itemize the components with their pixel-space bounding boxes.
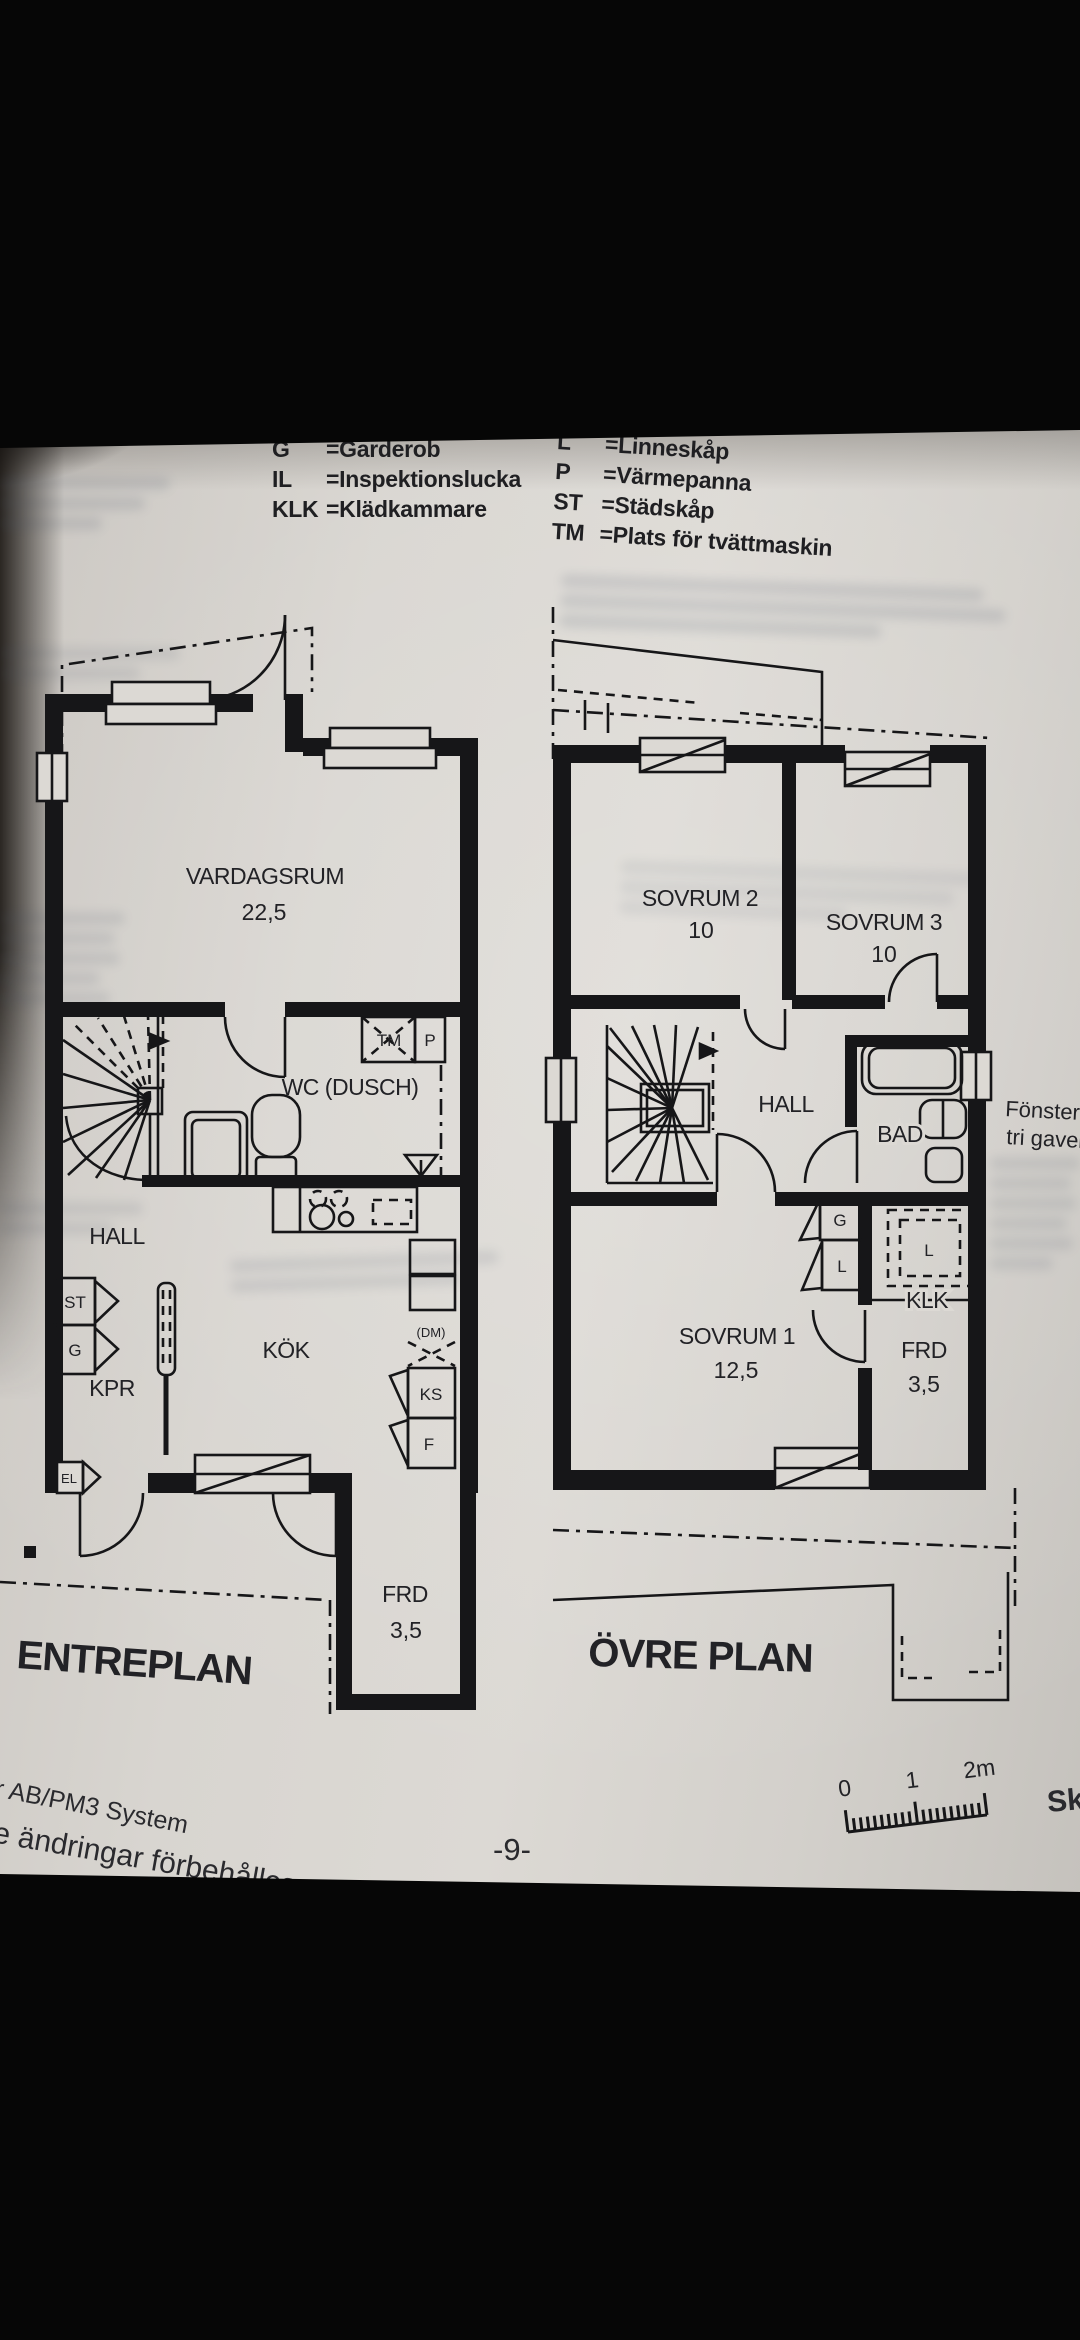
entreplan-plan: VARDAGSRUM 22,5 TM P WC (DUSCH) HALL ST … [0, 615, 478, 1714]
annotation-line2: tri gavel [1006, 1124, 1080, 1153]
partition-strip [158, 1283, 175, 1455]
page-number: -9- [493, 1832, 531, 1867]
room-label-sovrum1: SOVRUM 1 [679, 1323, 795, 1349]
room-label-frd-ovre: FRD [901, 1337, 947, 1363]
room-label-hall: HALL [89, 1223, 145, 1249]
label-g-ovre: G [833, 1211, 846, 1230]
room-area-frd-entreplan: 3,5 [390, 1617, 422, 1643]
label-el: EL [61, 1471, 77, 1486]
terrace-door [200, 615, 285, 700]
label-st: ST [64, 1293, 86, 1312]
terrace-door-bottom [273, 1493, 336, 1556]
room-area-sovrum3: 10 [871, 941, 897, 967]
label-g: G [68, 1341, 81, 1360]
room-label-frd-entreplan: FRD [382, 1581, 428, 1607]
room-label-bad: BAD [877, 1121, 923, 1147]
toilet [252, 1095, 300, 1185]
upper-terrace-outline [553, 607, 990, 763]
ovre-plan: SOVRUM 2 10 SOVRUM 3 10 HALL BAD G L L K… [546, 607, 1080, 1700]
scale-bar: 0 1 2m [836, 1754, 1001, 1833]
label-p: P [424, 1031, 435, 1050]
room-area-sovrum2: 10 [688, 917, 714, 943]
label-f: F [424, 1435, 434, 1454]
bathtub [862, 1042, 962, 1094]
footer-right-cut-text: Sk [1046, 1783, 1080, 1819]
label-l-ovre: L [837, 1257, 846, 1276]
room-area-vardagsrum: 22,5 [242, 899, 287, 925]
kitchen-counter [273, 1187, 417, 1232]
room-label-hall-ovre: HALL [758, 1091, 814, 1117]
plan-title-ovre-plan: ÖVRE PLAN [588, 1630, 813, 1681]
staircase [63, 1015, 167, 1180]
shower-basin [185, 1112, 247, 1185]
plan-title-entreplan: ENTREPLAN [15, 1633, 253, 1693]
scale-tick-0: 0 [837, 1774, 853, 1801]
scale-tick-1: 1 [904, 1766, 920, 1793]
room-label-wc: WC (DUSCH) [282, 1074, 419, 1100]
room-label-sovrum3: SOVRUM 3 [826, 909, 942, 935]
bath-sink [920, 1100, 966, 1138]
room-label-kok: KÖK [262, 1337, 310, 1363]
room-label-klk: KLK [906, 1287, 949, 1313]
annotation-line1: Fönster vi [1005, 1096, 1080, 1126]
scale-tick-2m: 2m [962, 1754, 997, 1784]
screenshot-root: { "legend": { "left": [ {"abbr":"G","def… [0, 0, 1080, 2340]
marker-dot [24, 1546, 36, 1558]
kitchen-cabinets [390, 1240, 455, 1468]
g-l-closets [800, 1197, 862, 1290]
bath-toilet [926, 1148, 962, 1182]
label-l2-ovre: L [924, 1241, 933, 1260]
room-label-kpr: KPR [89, 1375, 135, 1401]
label-dm: (DM) [417, 1325, 446, 1340]
room-label-sovrum2: SOVRUM 2 [642, 885, 758, 911]
label-ks: KS [420, 1385, 443, 1404]
room-area-sovrum1: 12,5 [714, 1357, 759, 1383]
room-area-frd-ovre: 3,5 [908, 1371, 940, 1397]
entry-door [80, 1493, 143, 1556]
label-tm: TM [377, 1031, 402, 1050]
room-label-vardagsrum: VARDAGSRUM [186, 863, 344, 889]
staircase [607, 1025, 716, 1183]
